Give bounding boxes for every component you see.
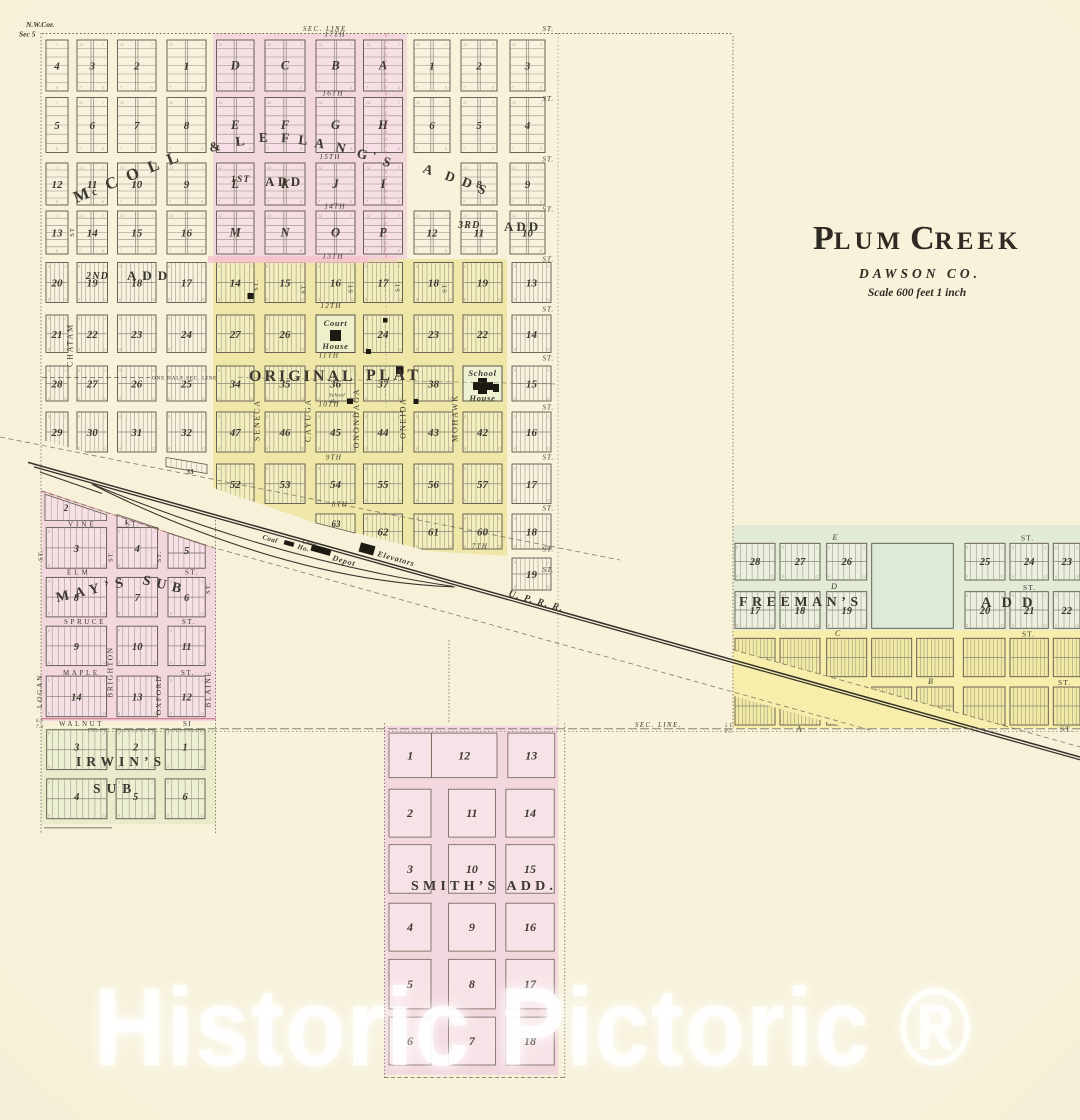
svg-text:1: 1 bbox=[498, 466, 500, 471]
svg-text:9: 9 bbox=[48, 731, 50, 736]
svg-text:9: 9 bbox=[218, 316, 220, 321]
svg-text:1: 1 bbox=[771, 545, 773, 550]
svg-text:9: 9 bbox=[1055, 545, 1057, 550]
svg-text:1: 1 bbox=[250, 316, 252, 321]
svg-text:8: 8 bbox=[416, 347, 418, 352]
svg-text:9: 9 bbox=[119, 368, 121, 373]
svg-text:24: 24 bbox=[1023, 557, 1035, 568]
svg-text:12: 12 bbox=[201, 446, 205, 451]
svg-text:8: 8 bbox=[365, 498, 367, 503]
svg-text:8: 8 bbox=[1012, 574, 1014, 579]
svg-text:12: 12 bbox=[1043, 574, 1047, 579]
svg-text:1: 1 bbox=[104, 368, 106, 373]
svg-text:8: 8 bbox=[782, 623, 784, 628]
svg-text:J: J bbox=[331, 177, 339, 191]
svg-text:8: 8 bbox=[168, 297, 170, 302]
svg-text:8: 8 bbox=[266, 297, 268, 302]
svg-text:42: 42 bbox=[476, 427, 489, 439]
svg-text:1: 1 bbox=[202, 414, 204, 419]
svg-text:8: 8 bbox=[318, 446, 320, 451]
svg-text:1: 1 bbox=[498, 516, 500, 521]
svg-text:12: 12 bbox=[512, 42, 516, 47]
svg-text:11TH: 11TH bbox=[319, 352, 340, 360]
svg-text:12: 12 bbox=[512, 165, 516, 170]
svg-text:1: 1 bbox=[547, 466, 549, 471]
svg-text:26: 26 bbox=[130, 379, 143, 391]
svg-text:15: 15 bbox=[526, 379, 538, 391]
svg-text:1: 1 bbox=[102, 213, 104, 218]
svg-text:1: 1 bbox=[398, 100, 400, 105]
svg-text:9: 9 bbox=[184, 179, 190, 191]
svg-text:ADD: ADD bbox=[265, 174, 304, 189]
svg-text:15: 15 bbox=[524, 862, 536, 876]
svg-text:12: 12 bbox=[150, 813, 154, 818]
svg-text:12: 12 bbox=[512, 100, 516, 105]
svg-text:1: 1 bbox=[56, 100, 58, 105]
svg-text:12: 12 bbox=[79, 213, 83, 218]
svg-text:12: 12 bbox=[153, 660, 157, 665]
svg-text:9: 9 bbox=[966, 593, 968, 598]
svg-text:12: 12 bbox=[318, 165, 322, 170]
svg-text:9: 9 bbox=[514, 368, 516, 373]
svg-text:M: M bbox=[229, 226, 242, 240]
svg-text:8: 8 bbox=[78, 347, 80, 352]
svg-text:8: 8 bbox=[365, 297, 367, 302]
svg-text:10TH: 10TH bbox=[318, 401, 339, 409]
svg-text:62: 62 bbox=[378, 527, 390, 539]
svg-text:12: 12 bbox=[151, 396, 155, 401]
svg-text:11: 11 bbox=[182, 642, 192, 653]
svg-text:12: 12 bbox=[366, 100, 370, 105]
svg-text:Scale 600 feet 1 inch: Scale 600 feet 1 inch bbox=[868, 287, 966, 299]
svg-text:1: 1 bbox=[249, 42, 251, 47]
svg-text:Sec 5: Sec 5 bbox=[19, 30, 36, 39]
svg-text:12: 12 bbox=[398, 446, 402, 451]
svg-text:1: 1 bbox=[250, 466, 252, 471]
svg-text:9: 9 bbox=[48, 316, 50, 321]
svg-text:9: 9 bbox=[119, 316, 121, 321]
svg-text:1: 1 bbox=[449, 316, 451, 321]
svg-text:12: 12 bbox=[546, 297, 550, 302]
svg-text:18: 18 bbox=[428, 278, 440, 290]
svg-text:1: 1 bbox=[547, 560, 549, 565]
svg-text:12: 12 bbox=[416, 100, 420, 105]
svg-text:12: 12 bbox=[201, 396, 205, 401]
svg-text:L: L bbox=[298, 132, 309, 148]
svg-text:1: 1 bbox=[300, 42, 302, 47]
svg-text:22: 22 bbox=[1060, 606, 1072, 617]
svg-text:D: D bbox=[830, 582, 837, 591]
svg-text:6: 6 bbox=[151, 199, 153, 204]
svg-text:3RD: 3RD bbox=[457, 220, 481, 231]
svg-text:9: 9 bbox=[266, 466, 268, 471]
svg-text:8: 8 bbox=[48, 563, 50, 568]
svg-text:8: 8 bbox=[416, 297, 418, 302]
svg-text:9: 9 bbox=[464, 264, 466, 269]
svg-text:6: 6 bbox=[201, 248, 203, 253]
svg-text:1: 1 bbox=[398, 165, 400, 170]
svg-text:1: 1 bbox=[863, 545, 865, 550]
svg-text:6: 6 bbox=[300, 85, 302, 90]
svg-text:ST: ST bbox=[69, 227, 76, 237]
svg-text:1: 1 bbox=[449, 516, 451, 521]
svg-text:12: 12 bbox=[497, 347, 501, 352]
svg-text:N: N bbox=[279, 226, 290, 240]
svg-text:6: 6 bbox=[445, 248, 447, 253]
svg-text:8: 8 bbox=[184, 120, 190, 132]
svg-text:1: 1 bbox=[407, 748, 413, 762]
svg-text:ST.: ST. bbox=[543, 454, 555, 462]
svg-text:ONONDAGA: ONONDAGA bbox=[352, 388, 361, 449]
svg-text:22: 22 bbox=[476, 329, 489, 341]
svg-text:1: 1 bbox=[492, 165, 494, 170]
svg-text:1: 1 bbox=[429, 61, 435, 73]
svg-text:12: 12 bbox=[1000, 574, 1004, 579]
svg-text:6: 6 bbox=[492, 248, 494, 253]
svg-text:9: 9 bbox=[736, 593, 738, 598]
svg-text:52: 52 bbox=[230, 479, 242, 491]
svg-text:9: 9 bbox=[736, 545, 738, 550]
svg-text:23: 23 bbox=[427, 329, 440, 341]
svg-text:12: 12 bbox=[546, 584, 550, 589]
svg-text:1: 1 bbox=[154, 628, 156, 633]
svg-text:47: 47 bbox=[229, 427, 242, 439]
svg-text:1: 1 bbox=[351, 264, 353, 269]
svg-text:ST.: ST. bbox=[1022, 630, 1035, 639]
svg-text:12: 12 bbox=[463, 213, 467, 218]
svg-text:10: 10 bbox=[132, 642, 143, 653]
svg-text:19: 19 bbox=[526, 569, 538, 581]
svg-text:ST.: ST. bbox=[253, 279, 260, 291]
svg-text:ST.: ST. bbox=[1023, 583, 1036, 592]
svg-text:8: 8 bbox=[464, 347, 466, 352]
svg-text:8: 8 bbox=[966, 574, 968, 579]
svg-text:8: 8 bbox=[118, 611, 120, 616]
svg-text:ST.: ST. bbox=[543, 355, 555, 363]
svg-text:N.W.Cor.: N.W.Cor. bbox=[25, 20, 55, 29]
svg-text:8: 8 bbox=[514, 544, 516, 549]
svg-text:1: 1 bbox=[492, 213, 494, 218]
svg-text:8: 8 bbox=[1012, 623, 1014, 628]
svg-text:27: 27 bbox=[794, 557, 806, 568]
svg-text:12: 12 bbox=[169, 42, 173, 47]
svg-text:8: 8 bbox=[48, 347, 50, 352]
svg-text:6: 6 bbox=[151, 248, 153, 253]
svg-text:8: 8 bbox=[170, 660, 172, 665]
svg-text:8: 8 bbox=[514, 396, 516, 401]
svg-text:12: 12 bbox=[318, 213, 322, 218]
svg-text:1: 1 bbox=[64, 264, 66, 269]
svg-text:26: 26 bbox=[279, 329, 292, 341]
svg-text:12: 12 bbox=[300, 446, 304, 451]
svg-text:6: 6 bbox=[249, 199, 251, 204]
svg-text:9: 9 bbox=[514, 316, 516, 321]
svg-text:8: 8 bbox=[48, 764, 50, 769]
svg-text:LOGAN: LOGAN bbox=[35, 674, 44, 708]
svg-text:12: 12 bbox=[1075, 623, 1079, 628]
svg-text:53: 53 bbox=[280, 479, 292, 491]
svg-text:SPRUCE: SPRUCE bbox=[64, 618, 106, 626]
svg-text:12: 12 bbox=[546, 396, 550, 401]
svg-text:1: 1 bbox=[547, 368, 549, 373]
svg-text:12: 12 bbox=[153, 563, 157, 568]
svg-text:9: 9 bbox=[48, 678, 50, 683]
svg-text:23: 23 bbox=[130, 329, 143, 341]
svg-text:12: 12 bbox=[249, 347, 253, 352]
svg-text:9: 9 bbox=[48, 780, 50, 785]
svg-text:9: 9 bbox=[416, 466, 418, 471]
svg-text:8: 8 bbox=[78, 396, 80, 401]
svg-text:16TH: 16TH bbox=[322, 90, 343, 98]
svg-text:54: 54 bbox=[330, 479, 342, 491]
svg-text:16: 16 bbox=[181, 228, 193, 240]
svg-text:17: 17 bbox=[181, 278, 193, 290]
svg-text:1: 1 bbox=[492, 42, 494, 47]
svg-text:8: 8 bbox=[48, 396, 50, 401]
svg-text:1: 1 bbox=[398, 316, 400, 321]
svg-text:12: 12 bbox=[497, 446, 501, 451]
svg-text:38: 38 bbox=[427, 379, 440, 391]
svg-text:House: House bbox=[321, 341, 348, 351]
svg-text:57: 57 bbox=[477, 479, 489, 491]
svg-text:12: 12 bbox=[546, 347, 550, 352]
svg-text:16: 16 bbox=[330, 278, 342, 290]
svg-text:8: 8 bbox=[167, 813, 169, 818]
svg-text:1: 1 bbox=[547, 516, 549, 521]
svg-text:ORIGINAL: ORIGINAL bbox=[249, 368, 356, 385]
svg-text:14: 14 bbox=[71, 692, 82, 703]
svg-text:12: 12 bbox=[862, 574, 866, 579]
svg-text:1: 1 bbox=[449, 368, 451, 373]
svg-text:8: 8 bbox=[118, 711, 120, 716]
svg-text:9: 9 bbox=[218, 368, 220, 373]
svg-text:ST.: ST. bbox=[543, 505, 555, 513]
svg-text:G: G bbox=[331, 118, 340, 132]
svg-text:ST.: ST. bbox=[543, 25, 555, 33]
svg-text:45: 45 bbox=[329, 427, 342, 439]
svg-text:13: 13 bbox=[526, 278, 538, 290]
svg-text:8: 8 bbox=[266, 498, 268, 503]
svg-text:14: 14 bbox=[230, 278, 242, 290]
svg-text:DAWSON CO.: DAWSON CO. bbox=[858, 266, 981, 281]
svg-text:SENECA: SENECA bbox=[253, 399, 262, 441]
svg-text:12: 12 bbox=[200, 764, 204, 769]
svg-text:8: 8 bbox=[48, 660, 50, 665]
svg-text:9: 9 bbox=[365, 414, 367, 419]
svg-text:2: 2 bbox=[475, 61, 482, 73]
svg-text:6: 6 bbox=[249, 85, 251, 90]
svg-text:9: 9 bbox=[782, 545, 784, 550]
svg-text:H: H bbox=[377, 118, 389, 132]
svg-text:12: 12 bbox=[120, 42, 124, 47]
svg-text:1: 1 bbox=[1076, 593, 1078, 598]
svg-text:6: 6 bbox=[445, 146, 447, 151]
svg-text:12: 12 bbox=[52, 179, 64, 191]
svg-text:ONE HALF SEC. LINE: ONE HALF SEC. LINE bbox=[152, 376, 217, 382]
svg-text:28: 28 bbox=[749, 557, 761, 568]
svg-text:17: 17 bbox=[526, 479, 538, 491]
svg-text:8: 8 bbox=[464, 544, 466, 549]
svg-text:9: 9 bbox=[464, 466, 466, 471]
svg-text:25: 25 bbox=[979, 557, 991, 568]
svg-text:12: 12 bbox=[153, 611, 157, 616]
svg-text:12: 12 bbox=[102, 563, 106, 568]
svg-text:1: 1 bbox=[398, 42, 400, 47]
svg-text:1: 1 bbox=[104, 414, 106, 419]
svg-text:ST.: ST. bbox=[182, 618, 196, 626]
svg-text:School: School bbox=[329, 393, 345, 399]
svg-text:9: 9 bbox=[266, 264, 268, 269]
svg-text:1: 1 bbox=[64, 368, 66, 373]
svg-text:1: 1 bbox=[64, 316, 66, 321]
svg-text:21: 21 bbox=[51, 329, 63, 341]
svg-text:2: 2 bbox=[63, 503, 69, 513]
svg-text:8: 8 bbox=[218, 347, 220, 352]
svg-text:12: 12 bbox=[151, 297, 155, 302]
svg-text:12: 12 bbox=[463, 165, 467, 170]
svg-text:6: 6 bbox=[350, 146, 352, 151]
svg-text:B: B bbox=[928, 677, 933, 686]
svg-text:12: 12 bbox=[120, 213, 124, 218]
svg-text:WALNUT: WALNUT bbox=[59, 720, 104, 728]
svg-text:27: 27 bbox=[86, 379, 99, 391]
svg-text:ST.: ST. bbox=[126, 521, 140, 529]
svg-text:12: 12 bbox=[169, 213, 173, 218]
svg-text:9: 9 bbox=[1055, 593, 1057, 598]
svg-text:1: 1 bbox=[301, 264, 303, 269]
svg-text:8: 8 bbox=[1055, 574, 1057, 579]
svg-text:BRIGHTON: BRIGHTON bbox=[105, 646, 114, 697]
svg-text:12: 12 bbox=[169, 100, 173, 105]
svg-text:12: 12 bbox=[497, 297, 501, 302]
svg-text:9: 9 bbox=[218, 264, 220, 269]
svg-text:9: 9 bbox=[48, 579, 50, 584]
svg-text:8: 8 bbox=[119, 446, 121, 451]
svg-text:SMITH’S ADD.: SMITH’S ADD. bbox=[411, 879, 557, 894]
svg-text:14: 14 bbox=[524, 806, 536, 820]
svg-text:ST.: ST. bbox=[543, 256, 555, 264]
svg-text:1: 1 bbox=[449, 264, 451, 269]
svg-text:12TH: 12TH bbox=[320, 302, 341, 310]
svg-text:1: 1 bbox=[151, 42, 153, 47]
svg-text:12: 12 bbox=[218, 42, 222, 47]
svg-text:1: 1 bbox=[301, 466, 303, 471]
svg-text:7: 7 bbox=[134, 120, 140, 132]
svg-text:8: 8 bbox=[514, 297, 516, 302]
svg-text:13: 13 bbox=[132, 692, 143, 703]
svg-text:24: 24 bbox=[377, 329, 390, 341]
svg-text:ADD: ADD bbox=[981, 595, 1042, 611]
svg-text:ST.: ST. bbox=[543, 404, 555, 412]
svg-text:8: 8 bbox=[736, 623, 738, 628]
svg-text:6: 6 bbox=[540, 248, 542, 253]
svg-text:12: 12 bbox=[448, 297, 452, 302]
svg-text:12: 12 bbox=[200, 813, 204, 818]
svg-text:1: 1 bbox=[151, 780, 153, 785]
svg-text:8: 8 bbox=[48, 711, 50, 716]
svg-text:6: 6 bbox=[492, 85, 494, 90]
svg-text:9: 9 bbox=[78, 264, 80, 269]
svg-text:1: 1 bbox=[201, 780, 203, 785]
svg-text:2: 2 bbox=[132, 743, 139, 754]
svg-text:1: 1 bbox=[201, 579, 203, 584]
svg-text:9: 9 bbox=[266, 316, 268, 321]
svg-text:8: 8 bbox=[78, 297, 80, 302]
svg-text:8: 8 bbox=[514, 446, 516, 451]
svg-text:12: 12 bbox=[458, 748, 470, 762]
svg-text:6: 6 bbox=[398, 199, 400, 204]
svg-text:8: 8 bbox=[48, 611, 50, 616]
svg-text:8: 8 bbox=[828, 574, 830, 579]
svg-text:9: 9 bbox=[118, 731, 120, 736]
svg-text:12: 12 bbox=[463, 42, 467, 47]
svg-text:13TH: 13TH bbox=[322, 253, 343, 261]
svg-text:12: 12 bbox=[300, 297, 304, 302]
svg-text:CAYUGA: CAYUGA bbox=[304, 398, 313, 442]
svg-text:12: 12 bbox=[151, 347, 155, 352]
svg-text:1: 1 bbox=[449, 466, 451, 471]
svg-text:6: 6 bbox=[350, 85, 352, 90]
svg-text:9: 9 bbox=[416, 414, 418, 419]
svg-text:29: 29 bbox=[51, 427, 64, 439]
svg-text:1: 1 bbox=[498, 414, 500, 419]
svg-text:6: 6 bbox=[201, 85, 203, 90]
svg-text:13: 13 bbox=[525, 748, 537, 762]
svg-text:FREEMAN’S: FREEMAN’S bbox=[739, 595, 863, 610]
svg-text:IRWIN’S: IRWIN’S bbox=[76, 754, 166, 769]
svg-text:4: 4 bbox=[73, 792, 79, 803]
svg-text:9: 9 bbox=[168, 316, 170, 321]
svg-text:15: 15 bbox=[131, 228, 143, 240]
svg-text:5: 5 bbox=[54, 120, 60, 132]
svg-text:12: 12 bbox=[63, 396, 67, 401]
svg-text:1: 1 bbox=[300, 100, 302, 105]
svg-text:8: 8 bbox=[266, 347, 268, 352]
svg-text:6: 6 bbox=[89, 120, 95, 132]
svg-text:44: 44 bbox=[377, 427, 390, 439]
svg-text:CHATAM: CHATAM bbox=[66, 323, 75, 367]
svg-text:1: 1 bbox=[1044, 593, 1046, 598]
svg-text:9: 9 bbox=[48, 368, 50, 373]
svg-text:6: 6 bbox=[429, 120, 435, 132]
svg-text:55: 55 bbox=[378, 479, 390, 491]
svg-text:22: 22 bbox=[86, 329, 99, 341]
svg-text:9: 9 bbox=[514, 466, 516, 471]
svg-text:24: 24 bbox=[180, 329, 193, 341]
svg-text:32: 32 bbox=[180, 427, 193, 439]
svg-text:F: F bbox=[281, 130, 290, 145]
svg-text:12: 12 bbox=[79, 42, 83, 47]
svg-text:3: 3 bbox=[88, 61, 95, 73]
svg-text:8 5: 8 5 bbox=[725, 730, 732, 735]
svg-text:8: 8 bbox=[48, 297, 50, 302]
svg-text:8: 8 bbox=[736, 574, 738, 579]
svg-text:C: C bbox=[281, 59, 290, 73]
svg-text:12: 12 bbox=[201, 347, 205, 352]
svg-text:ST.: ST. bbox=[156, 551, 163, 563]
svg-text:1: 1 bbox=[547, 414, 549, 419]
svg-text:8: 8 bbox=[514, 584, 516, 589]
svg-text:1: 1 bbox=[445, 213, 447, 218]
svg-text:12: 12 bbox=[770, 623, 774, 628]
svg-text:1: 1 bbox=[154, 529, 156, 534]
svg-text:8: 8 bbox=[119, 347, 121, 352]
svg-text:9: 9 bbox=[218, 466, 220, 471]
svg-text:1: 1 bbox=[1001, 545, 1003, 550]
svg-text:9: 9 bbox=[78, 414, 80, 419]
svg-text:8: 8 bbox=[514, 347, 516, 352]
svg-text:5: 5 bbox=[476, 120, 482, 132]
